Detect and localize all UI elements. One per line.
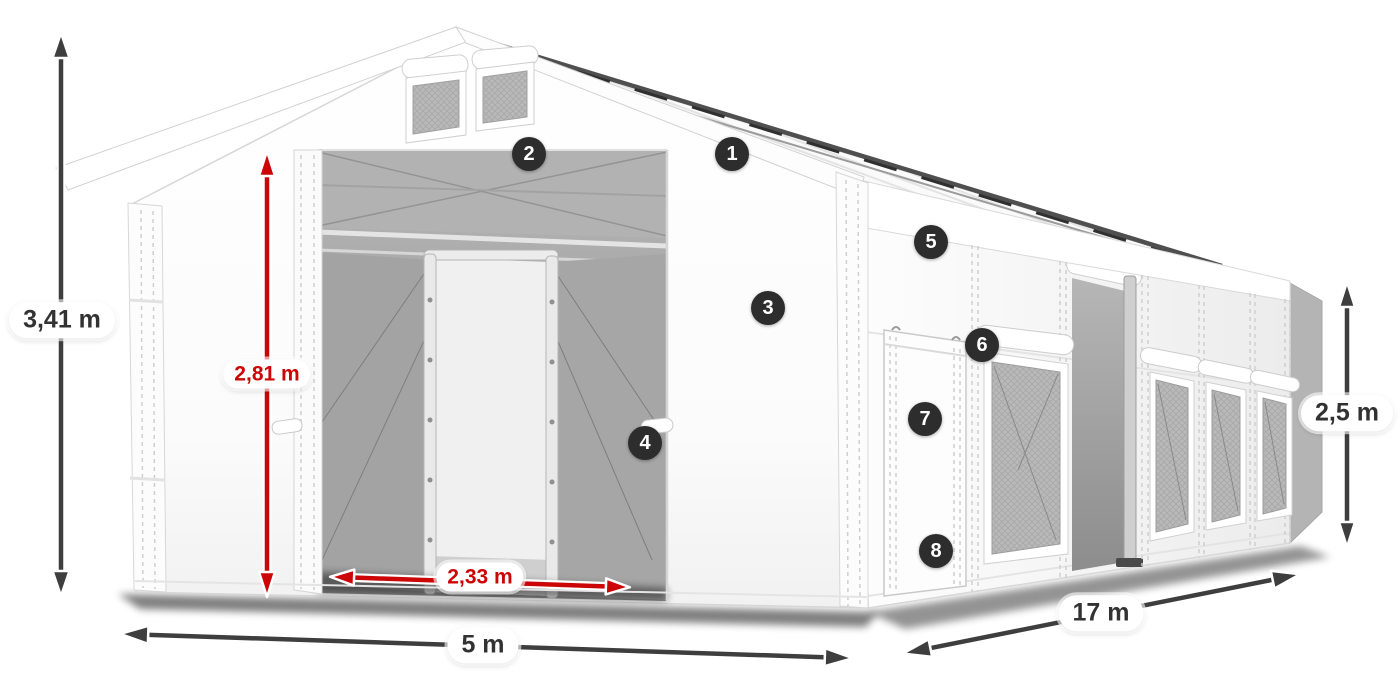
hotspot-8[interactable]: 8 — [919, 534, 953, 568]
corner-column-right — [836, 172, 868, 608]
label-length: 17 m — [1059, 595, 1144, 631]
inner-wall-left — [318, 252, 430, 592]
side-open-section — [1065, 254, 1143, 571]
tent-illustration — [0, 0, 1400, 700]
front-opening — [318, 150, 667, 601]
hotspot-2[interactable]: 2 — [512, 137, 546, 171]
hotspot-3[interactable]: 3 — [751, 291, 785, 325]
gable-vent-2 — [471, 45, 538, 131]
tent-dimension-diagram: 3,41 m 2,81 m 2,33 m 5 m 17 m 2,5 m 1 2 … — [0, 0, 1400, 700]
label-door-width: 2,33 m — [436, 562, 523, 591]
label-front-width: 5 m — [447, 627, 518, 663]
label-total-height: 3,41 m — [9, 302, 115, 338]
hotspot-5[interactable]: 5 — [914, 225, 948, 259]
hotspot-1[interactable]: 1 — [715, 137, 749, 171]
hotspot-6[interactable]: 6 — [965, 328, 999, 362]
label-side-height: 2,5 m — [1301, 395, 1393, 431]
corner-column-left — [128, 203, 166, 592]
inner-door-post-left — [424, 254, 436, 594]
gable-vent-1 — [401, 54, 468, 143]
inner-door-post-right — [546, 256, 558, 598]
steel-pole — [1124, 276, 1136, 564]
inner-doorway — [430, 258, 552, 596]
label-door-height: 2,81 m — [223, 359, 310, 388]
hotspot-4[interactable]: 4 — [628, 426, 662, 460]
hotspot-7[interactable]: 7 — [908, 402, 942, 436]
front-gable — [56, 27, 868, 608]
